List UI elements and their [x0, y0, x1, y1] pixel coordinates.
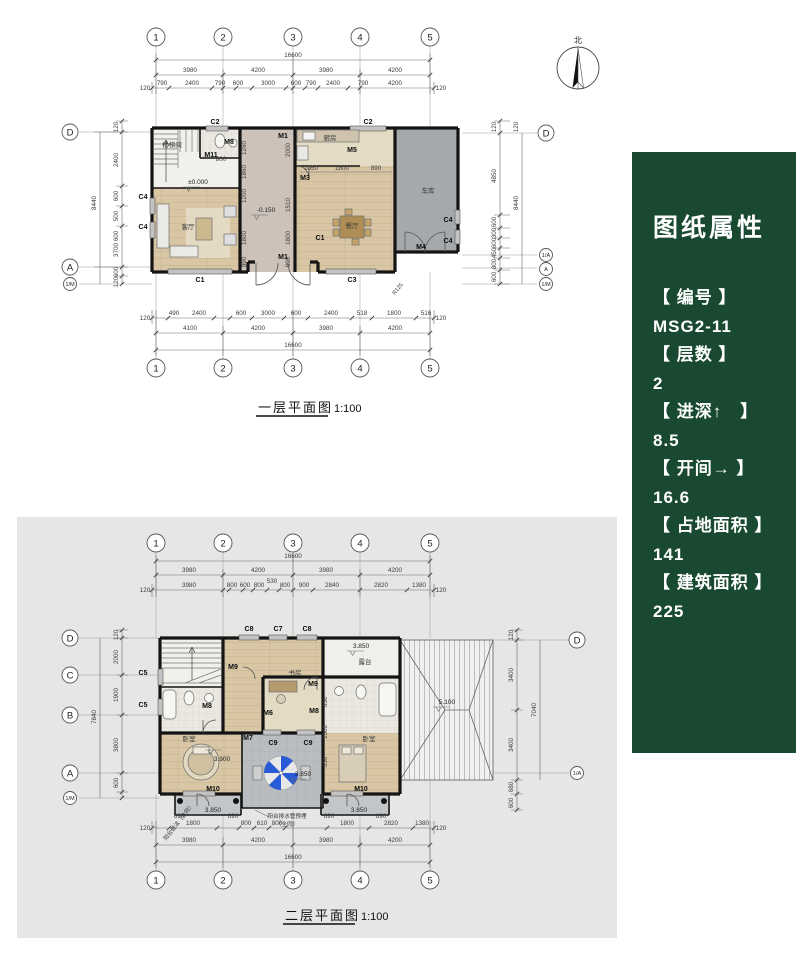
svg-text:2: 2	[220, 33, 225, 44]
svg-text:1860: 1860	[241, 165, 248, 180]
svg-text:C5: C5	[139, 670, 148, 677]
svg-text:7040: 7040	[531, 703, 538, 718]
svg-text:1800: 1800	[340, 820, 355, 827]
svg-text:1200: 1200	[241, 189, 248, 204]
svg-text:530: 530	[267, 578, 278, 585]
svg-text:3980: 3980	[183, 67, 198, 74]
svg-text:600: 600	[233, 80, 244, 87]
svg-text:1380: 1380	[412, 582, 427, 589]
attr-value-code: MSG2-11	[653, 313, 788, 342]
svg-text:C7: C7	[274, 626, 283, 633]
attr-label-footprint: 【 占地面积 】	[653, 512, 788, 541]
svg-text:2400: 2400	[192, 310, 207, 317]
svg-text:C9: C9	[269, 740, 278, 747]
svg-text:卧室: 卧室	[363, 734, 377, 743]
page: 16600 3980 4200 3980 4200 790 2400 790 6…	[0, 0, 800, 965]
svg-text:2: 2	[220, 876, 225, 887]
bottom-dimensions: 490 2400 600 3000 600 2400 518 1800 516 …	[140, 310, 447, 356]
svg-text:120: 120	[140, 85, 151, 92]
svg-text:3000: 3000	[261, 80, 276, 87]
attr-value-floor-area: 225	[653, 598, 788, 627]
svg-text:4200: 4200	[388, 80, 403, 87]
svg-text:M9: M9	[308, 681, 318, 688]
right-dimensions: 120 4850 600 300 600 450 800 600 120 844…	[491, 119, 522, 286]
svg-text:2400: 2400	[324, 310, 339, 317]
svg-text:卧室: 卧室	[183, 734, 197, 743]
svg-text:650: 650	[322, 756, 329, 767]
svg-text:A: A	[67, 769, 74, 780]
svg-text:1050: 1050	[304, 165, 319, 172]
svg-text:120: 120	[436, 587, 447, 594]
svg-text:3: 3	[290, 33, 295, 44]
attr-value-width: 16.6	[653, 484, 788, 513]
svg-text:A: A	[544, 267, 548, 273]
svg-text:518: 518	[357, 310, 368, 317]
svg-text:650: 650	[322, 696, 329, 707]
svg-text:3000: 3000	[261, 310, 276, 317]
svg-text:120: 120	[513, 121, 520, 132]
svg-text:600: 600	[291, 310, 302, 317]
svg-text:M4: M4	[416, 244, 426, 251]
svg-text:3980: 3980	[182, 582, 197, 589]
svg-text:690: 690	[228, 813, 239, 820]
attr-label-floor-area: 【 建筑面积 】	[653, 569, 788, 598]
svg-text:890: 890	[371, 165, 382, 172]
svg-text:3.850: 3.850	[205, 807, 222, 814]
svg-text:690: 690	[376, 813, 387, 820]
svg-text:600: 600	[491, 237, 498, 248]
svg-text:C8: C8	[245, 626, 254, 633]
svg-text:3.850: 3.850	[351, 807, 368, 814]
svg-text:1: 1	[153, 539, 158, 550]
svg-text:2: 2	[220, 539, 225, 550]
svg-text:一层平面图: 一层平面图	[258, 400, 333, 415]
svg-text:4200: 4200	[388, 837, 403, 844]
attr-value-footprint: 141	[653, 541, 788, 570]
svg-text:厨房: 厨房	[324, 133, 337, 142]
svg-text:600: 600	[291, 80, 302, 87]
second-floor-sheet: 16600 3980 4200 3980 4200 3980 800 600 8…	[17, 517, 617, 938]
svg-text:600: 600	[113, 190, 120, 201]
svg-text:R125: R125	[392, 282, 405, 296]
svg-text:1800: 1800	[335, 165, 350, 172]
svg-text:M8: M8	[224, 139, 234, 146]
svg-text:120: 120	[140, 315, 151, 322]
svg-text:3980: 3980	[182, 837, 197, 844]
compass: 北	[557, 36, 599, 89]
svg-text:M8: M8	[202, 703, 212, 710]
svg-text:120: 120	[508, 629, 515, 640]
svg-text:C3: C3	[348, 277, 357, 284]
svg-text:3: 3	[290, 364, 295, 375]
svg-text:800: 800	[241, 820, 252, 827]
svg-text:800: 800	[254, 582, 265, 589]
dim-total-top: 16600	[284, 52, 302, 59]
svg-text:C: C	[67, 671, 74, 682]
svg-text:（全同）: （全同）	[276, 820, 298, 828]
svg-text:3980: 3980	[182, 567, 197, 574]
svg-text:-0.150: -0.150	[257, 207, 276, 214]
svg-text:C9: C9	[304, 740, 313, 747]
svg-text:3.850: 3.850	[295, 771, 312, 778]
svg-text:8440: 8440	[513, 196, 520, 211]
svg-text:600: 600	[113, 777, 120, 788]
svg-text:120: 120	[113, 276, 120, 287]
svg-text:C4: C4	[444, 217, 453, 224]
svg-text:车库: 车库	[422, 186, 436, 195]
svg-text:600: 600	[113, 230, 120, 241]
svg-text:3.850: 3.850	[353, 643, 370, 650]
attr-label-depth: 【 进深↑ 】	[653, 398, 788, 427]
svg-text:790: 790	[215, 80, 226, 87]
svg-text:2820: 2820	[374, 582, 389, 589]
svg-text:M6: M6	[263, 710, 273, 717]
svg-text:5: 5	[427, 876, 432, 887]
svg-text:4100: 4100	[183, 325, 198, 332]
left-dimensions: 120 2400 600 500 600 3700 600 120 8440	[91, 119, 128, 287]
svg-text:120: 120	[140, 825, 151, 832]
svg-text:M10: M10	[206, 786, 220, 793]
svg-text:120: 120	[113, 629, 120, 640]
svg-text:790: 790	[157, 80, 168, 87]
svg-text:500: 500	[113, 210, 120, 221]
svg-text:120: 120	[491, 121, 498, 132]
svg-text:1800: 1800	[186, 820, 201, 827]
svg-text:M1: M1	[278, 133, 288, 140]
svg-text:1380: 1380	[415, 820, 430, 827]
panel-title: 图纸属性	[653, 208, 788, 244]
svg-text:C2: C2	[364, 119, 373, 126]
svg-text:4: 4	[357, 364, 362, 375]
second-floor-plan: 16600 3980 4200 3980 4200 3980 800 600 8…	[17, 517, 617, 938]
attr-value-floors: 2	[653, 370, 788, 399]
svg-text:C4: C4	[139, 224, 148, 231]
floor2-caption: 二层平面图 1:100	[283, 908, 389, 924]
svg-text:M11: M11	[204, 152, 217, 159]
svg-text:600: 600	[113, 266, 120, 277]
attr-label-width: 【 开间→ 】	[653, 455, 788, 484]
svg-text:3400: 3400	[508, 668, 515, 683]
svg-text:1/M: 1/M	[541, 282, 551, 288]
svg-text:1800: 1800	[285, 231, 292, 246]
svg-text:C1: C1	[316, 235, 325, 242]
svg-text:1:100: 1:100	[334, 403, 362, 415]
svg-text:3980: 3980	[319, 325, 334, 332]
svg-text:1800: 1800	[241, 231, 248, 246]
svg-text:3980: 3980	[319, 67, 334, 74]
svg-text:1/M: 1/M	[65, 796, 75, 802]
svg-text:2840: 2840	[325, 582, 340, 589]
svg-text:3.900: 3.900	[214, 756, 231, 763]
svg-text:C4: C4	[444, 238, 453, 245]
attr-label-floors: 【 层数 】	[653, 341, 788, 370]
svg-text:M1: M1	[278, 254, 288, 261]
svg-text:1510: 1510	[285, 198, 292, 213]
svg-text:4200: 4200	[251, 567, 266, 574]
svg-text:4200: 4200	[251, 837, 266, 844]
svg-text:2400: 2400	[326, 80, 341, 87]
svg-text:C2: C2	[211, 119, 220, 126]
svg-text:2400: 2400	[113, 153, 120, 168]
svg-text:3400: 3400	[508, 738, 515, 753]
svg-text:300: 300	[491, 227, 498, 238]
attr-label-code: 【 编号 】	[653, 284, 788, 313]
svg-text:D: D	[543, 129, 550, 140]
svg-text:M10: M10	[354, 786, 368, 793]
svg-text:490: 490	[169, 310, 180, 317]
svg-text:16600: 16600	[284, 854, 302, 861]
first-floor-plan: 16600 3980 4200 3980 4200 790 2400 790 6…	[0, 0, 640, 475]
svg-text:8440: 8440	[91, 196, 98, 211]
svg-text:120: 120	[436, 315, 447, 322]
svg-text:120: 120	[436, 85, 447, 92]
svg-text:600: 600	[491, 216, 498, 227]
svg-text:C4: C4	[139, 194, 148, 201]
svg-text:5: 5	[427, 364, 432, 375]
north-label: 北	[574, 36, 582, 45]
svg-text:680: 680	[508, 781, 515, 792]
svg-text:16600: 16600	[284, 342, 302, 349]
svg-text:5: 5	[427, 33, 432, 44]
svg-text:600: 600	[508, 797, 515, 808]
svg-text:120: 120	[436, 825, 447, 832]
svg-text:1/M: 1/M	[65, 282, 75, 288]
svg-text:2400: 2400	[185, 80, 200, 87]
svg-text:990: 990	[241, 256, 248, 267]
svg-text:900: 900	[299, 582, 310, 589]
svg-text:二层平面图: 二层平面图	[285, 908, 360, 923]
svg-text:3800: 3800	[113, 738, 120, 753]
svg-text:餐厅: 餐厅	[346, 221, 360, 230]
svg-text:1: 1	[153, 876, 158, 887]
svg-text:3980: 3980	[319, 567, 334, 574]
svg-text:4200: 4200	[388, 567, 403, 574]
svg-text:2: 2	[220, 364, 225, 375]
svg-text:C8: C8	[303, 626, 312, 633]
top-dimensions-2: 16600 3980 4200 3980 4200 3980 800 600 8…	[140, 553, 447, 597]
svg-text:450: 450	[491, 247, 498, 258]
svg-text:2000: 2000	[113, 650, 120, 665]
svg-text:D: D	[67, 634, 74, 645]
svg-text:120: 120	[113, 121, 120, 132]
svg-text:7840: 7840	[91, 710, 98, 725]
svg-text:1/A: 1/A	[542, 253, 551, 259]
svg-text:5: 5	[427, 539, 432, 550]
svg-text:露台: 露台	[359, 657, 372, 666]
svg-text:A: A	[67, 263, 74, 274]
svg-text:1260: 1260	[241, 141, 248, 156]
svg-text:800: 800	[280, 582, 291, 589]
svg-text:楼梯间: 楼梯间	[162, 140, 182, 149]
svg-text:M7: M7	[243, 735, 253, 742]
svg-text:5.100: 5.100	[439, 699, 456, 706]
svg-text:M5: M5	[347, 147, 357, 154]
svg-text:800: 800	[227, 582, 238, 589]
right-dimensions-2: 120 3400 3400 680 600 7040	[508, 628, 540, 812]
svg-text:4850: 4850	[491, 169, 498, 184]
svg-text:3: 3	[290, 539, 295, 550]
svg-text:4: 4	[357, 33, 362, 44]
svg-text:1:100: 1:100	[361, 911, 389, 923]
svg-text:3980: 3980	[319, 837, 334, 844]
svg-text:2000: 2000	[285, 143, 292, 158]
svg-text:1500: 1500	[322, 725, 329, 740]
svg-text:16600: 16600	[284, 553, 302, 560]
svg-text:B: B	[67, 711, 73, 722]
top-dimensions: 16600 3980 4200 3980 4200 790 2400 790 6…	[140, 52, 447, 94]
svg-text:790: 790	[306, 80, 317, 87]
svg-text:客厅: 客厅	[182, 222, 196, 231]
svg-text:M8: M8	[309, 708, 319, 715]
svg-text:516: 516	[421, 310, 432, 317]
left-dimensions-2: 120 2000 1900 3800 600 7840	[91, 628, 128, 800]
svg-text:790: 790	[358, 80, 369, 87]
svg-text:4200: 4200	[388, 325, 403, 332]
svg-text:±0.000: ±0.000	[188, 179, 208, 186]
floor1-caption: 一层平面图 1:100	[256, 400, 362, 416]
svg-text:2820: 2820	[384, 820, 399, 827]
svg-text:1: 1	[153, 33, 158, 44]
svg-text:阳台排水管预埋: 阳台排水管预埋	[267, 812, 307, 820]
drawing-attributes-panel: 图纸属性 【 编号 】 MSG2-11 【 层数 】 2 【 进深↑ 】 8.5…	[632, 152, 796, 753]
svg-text:1: 1	[153, 364, 158, 375]
svg-text:800: 800	[491, 258, 498, 269]
svg-text:4200: 4200	[251, 67, 266, 74]
svg-text:M9: M9	[228, 664, 238, 671]
svg-text:D: D	[67, 128, 74, 139]
svg-text:D: D	[574, 636, 581, 647]
svg-text:690: 690	[324, 813, 335, 820]
svg-text:610: 610	[257, 820, 268, 827]
svg-text:1800: 1800	[387, 310, 402, 317]
svg-text:4200: 4200	[388, 67, 403, 74]
attr-value-depth: 8.5	[653, 427, 788, 456]
svg-text:C1: C1	[196, 277, 205, 284]
svg-text:书房: 书房	[289, 668, 302, 677]
svg-text:1900: 1900	[113, 688, 120, 703]
svg-text:4: 4	[357, 876, 362, 887]
svg-text:M3: M3	[300, 175, 310, 182]
svg-text:C5: C5	[139, 702, 148, 709]
garage-roof	[400, 640, 493, 780]
svg-text:4: 4	[357, 539, 362, 550]
svg-text:1/A: 1/A	[573, 771, 582, 777]
svg-text:600: 600	[491, 271, 498, 282]
svg-text:4200: 4200	[251, 325, 266, 332]
svg-text:120: 120	[140, 587, 151, 594]
svg-text:600: 600	[236, 310, 247, 317]
svg-text:3: 3	[290, 876, 295, 887]
svg-text:600: 600	[240, 582, 251, 589]
svg-text:3700: 3700	[113, 243, 120, 258]
